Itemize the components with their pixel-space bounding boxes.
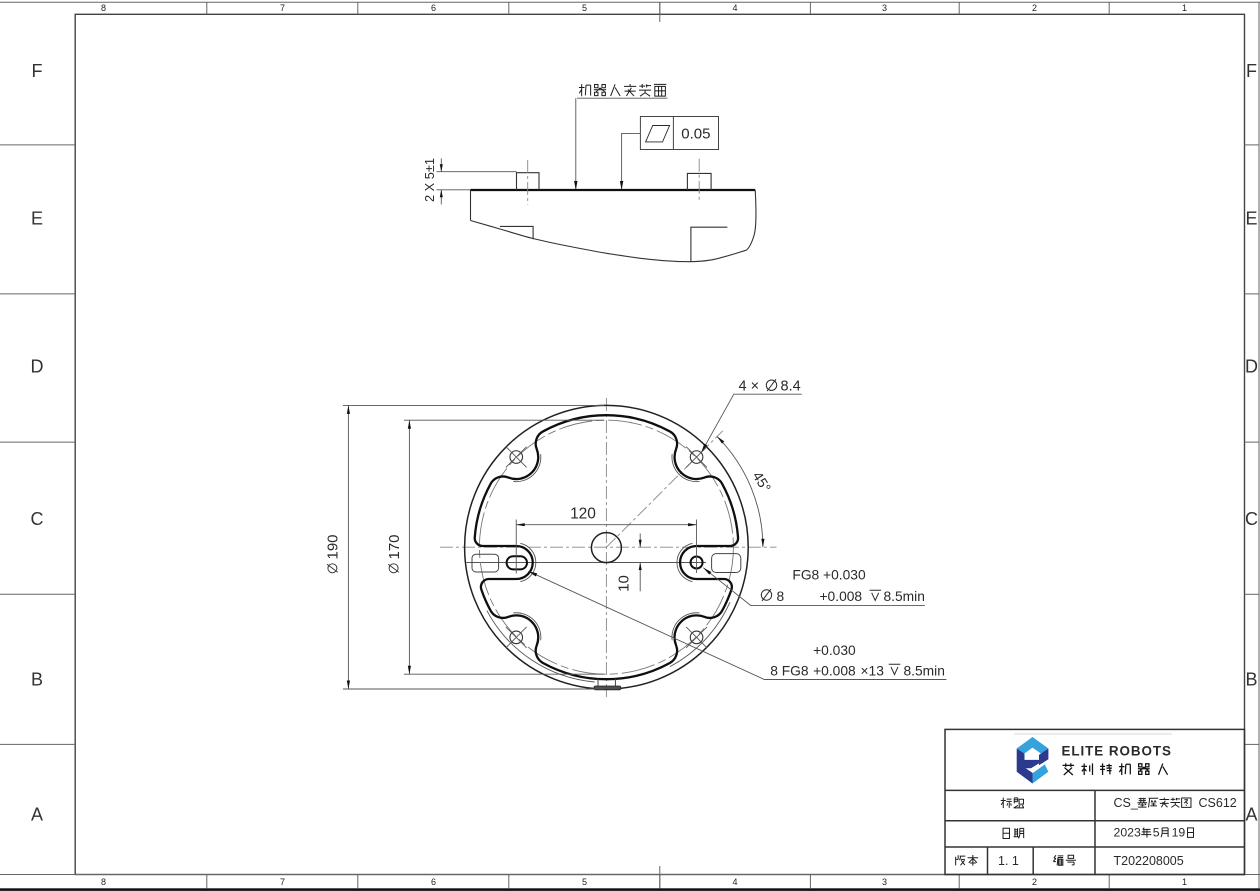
svg-text:A: A: [31, 805, 43, 825]
svg-text:B: B: [31, 670, 43, 690]
svg-text:10: 10: [616, 575, 633, 592]
svg-text:+0.008: +0.008: [813, 663, 856, 678]
svg-text:8: 8: [101, 877, 106, 887]
svg-text:2 X 5±1: 2 X 5±1: [422, 158, 437, 202]
svg-text:F: F: [32, 61, 43, 81]
svg-text:A: A: [1245, 805, 1257, 825]
svg-text:8: 8: [101, 3, 106, 13]
svg-text:4 ×: 4 ×: [739, 379, 760, 395]
svg-text:7: 7: [280, 3, 285, 13]
svg-text:CS_: CS_: [1114, 796, 1139, 810]
svg-text:CS612: CS612: [1199, 796, 1237, 810]
svg-text:×13: ×13: [861, 663, 885, 678]
svg-text:1: 1: [1182, 877, 1187, 887]
svg-text:1: 1: [1182, 3, 1187, 13]
svg-text:E: E: [1245, 209, 1257, 229]
svg-text:8.5min: 8.5min: [884, 589, 925, 604]
svg-text:190: 190: [325, 534, 342, 559]
svg-text:C: C: [31, 509, 44, 529]
svg-text:8.5min: 8.5min: [904, 663, 945, 678]
svg-text:45°: 45°: [750, 469, 775, 495]
svg-text:1. 1: 1. 1: [998, 854, 1019, 868]
svg-text:6: 6: [431, 3, 436, 13]
svg-text:FG8 +0.030: FG8 +0.030: [792, 567, 866, 582]
svg-text:D: D: [31, 357, 44, 377]
svg-text:3: 3: [882, 3, 887, 13]
svg-text:4: 4: [732, 3, 737, 13]
svg-text:8: 8: [777, 589, 785, 604]
svg-text:2023: 2023: [1114, 826, 1142, 840]
svg-text:4: 4: [732, 877, 737, 887]
svg-text:3: 3: [882, 877, 887, 887]
svg-text:7: 7: [280, 877, 285, 887]
svg-text:5: 5: [582, 877, 587, 887]
svg-text:170: 170: [386, 534, 403, 559]
svg-text:+0.030: +0.030: [813, 643, 856, 658]
svg-text:5: 5: [582, 3, 587, 13]
svg-text:0.05: 0.05: [681, 126, 710, 143]
svg-text:5: 5: [1153, 826, 1160, 840]
svg-text:F: F: [1246, 61, 1257, 81]
svg-text:+0.008: +0.008: [820, 589, 863, 604]
svg-text:2: 2: [1032, 3, 1037, 13]
svg-text:8.4: 8.4: [781, 379, 801, 395]
svg-text:T202208005: T202208005: [1114, 854, 1184, 868]
svg-text:C: C: [1245, 509, 1258, 529]
svg-text:6: 6: [431, 877, 436, 887]
svg-text:2: 2: [1032, 877, 1037, 887]
svg-text:120: 120: [570, 506, 596, 523]
svg-text:8 FG8: 8 FG8: [770, 663, 809, 678]
svg-text:ELITE ROBOTS: ELITE ROBOTS: [1062, 744, 1172, 759]
svg-text:E: E: [31, 209, 43, 229]
svg-text:D: D: [1245, 357, 1258, 377]
svg-text:19: 19: [1172, 826, 1186, 840]
svg-text:B: B: [1245, 670, 1257, 690]
